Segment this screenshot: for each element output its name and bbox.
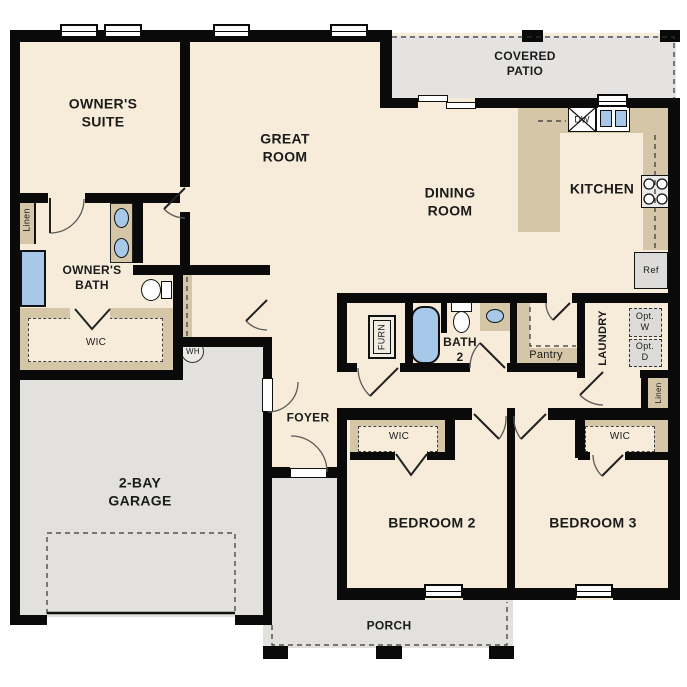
bath2-label: BATH 2	[443, 335, 477, 365]
bedroom2-label: BEDROOM 2	[388, 514, 476, 532]
floor-plan: OWNER'S SUITE GREAT ROOM COVERED PATIO D…	[0, 0, 687, 687]
linen-right-label: Linen	[654, 382, 664, 403]
kitchen-label: KITCHEN	[570, 180, 634, 198]
optional-dryer-label: Opt. D	[636, 341, 654, 364]
owners-wic-label: WIC	[86, 337, 106, 350]
linen-left-label: Linen	[21, 208, 32, 232]
laundry-label: LAUNDRY	[597, 310, 611, 365]
furnace-label: FURN	[376, 324, 387, 350]
water-heater-label: WH	[186, 347, 200, 357]
dishwasher-label: DW	[574, 114, 590, 125]
great-room-label: GREAT ROOM	[260, 131, 309, 166]
refrigerator-label: Ref	[643, 265, 659, 277]
bedroom3-wic-label: WIC	[610, 431, 630, 444]
bedroom2-wic-label: WIC	[389, 431, 409, 444]
pantry-label: Pantry	[529, 349, 563, 363]
covered-patio-label: COVERED PATIO	[494, 49, 555, 79]
owners-bath-label: OWNER'S BATH	[63, 263, 122, 293]
bedroom3-label: BEDROOM 3	[549, 514, 637, 532]
optional-washer-label: Opt. W	[636, 311, 654, 334]
dining-room-label: DINING ROOM	[425, 185, 476, 220]
owners-suite-label: OWNER'S SUITE	[69, 96, 137, 131]
porch-label: PORCH	[367, 619, 412, 634]
garage-label: 2-BAY GARAGE	[108, 475, 171, 510]
foyer-label: FOYER	[287, 411, 330, 426]
